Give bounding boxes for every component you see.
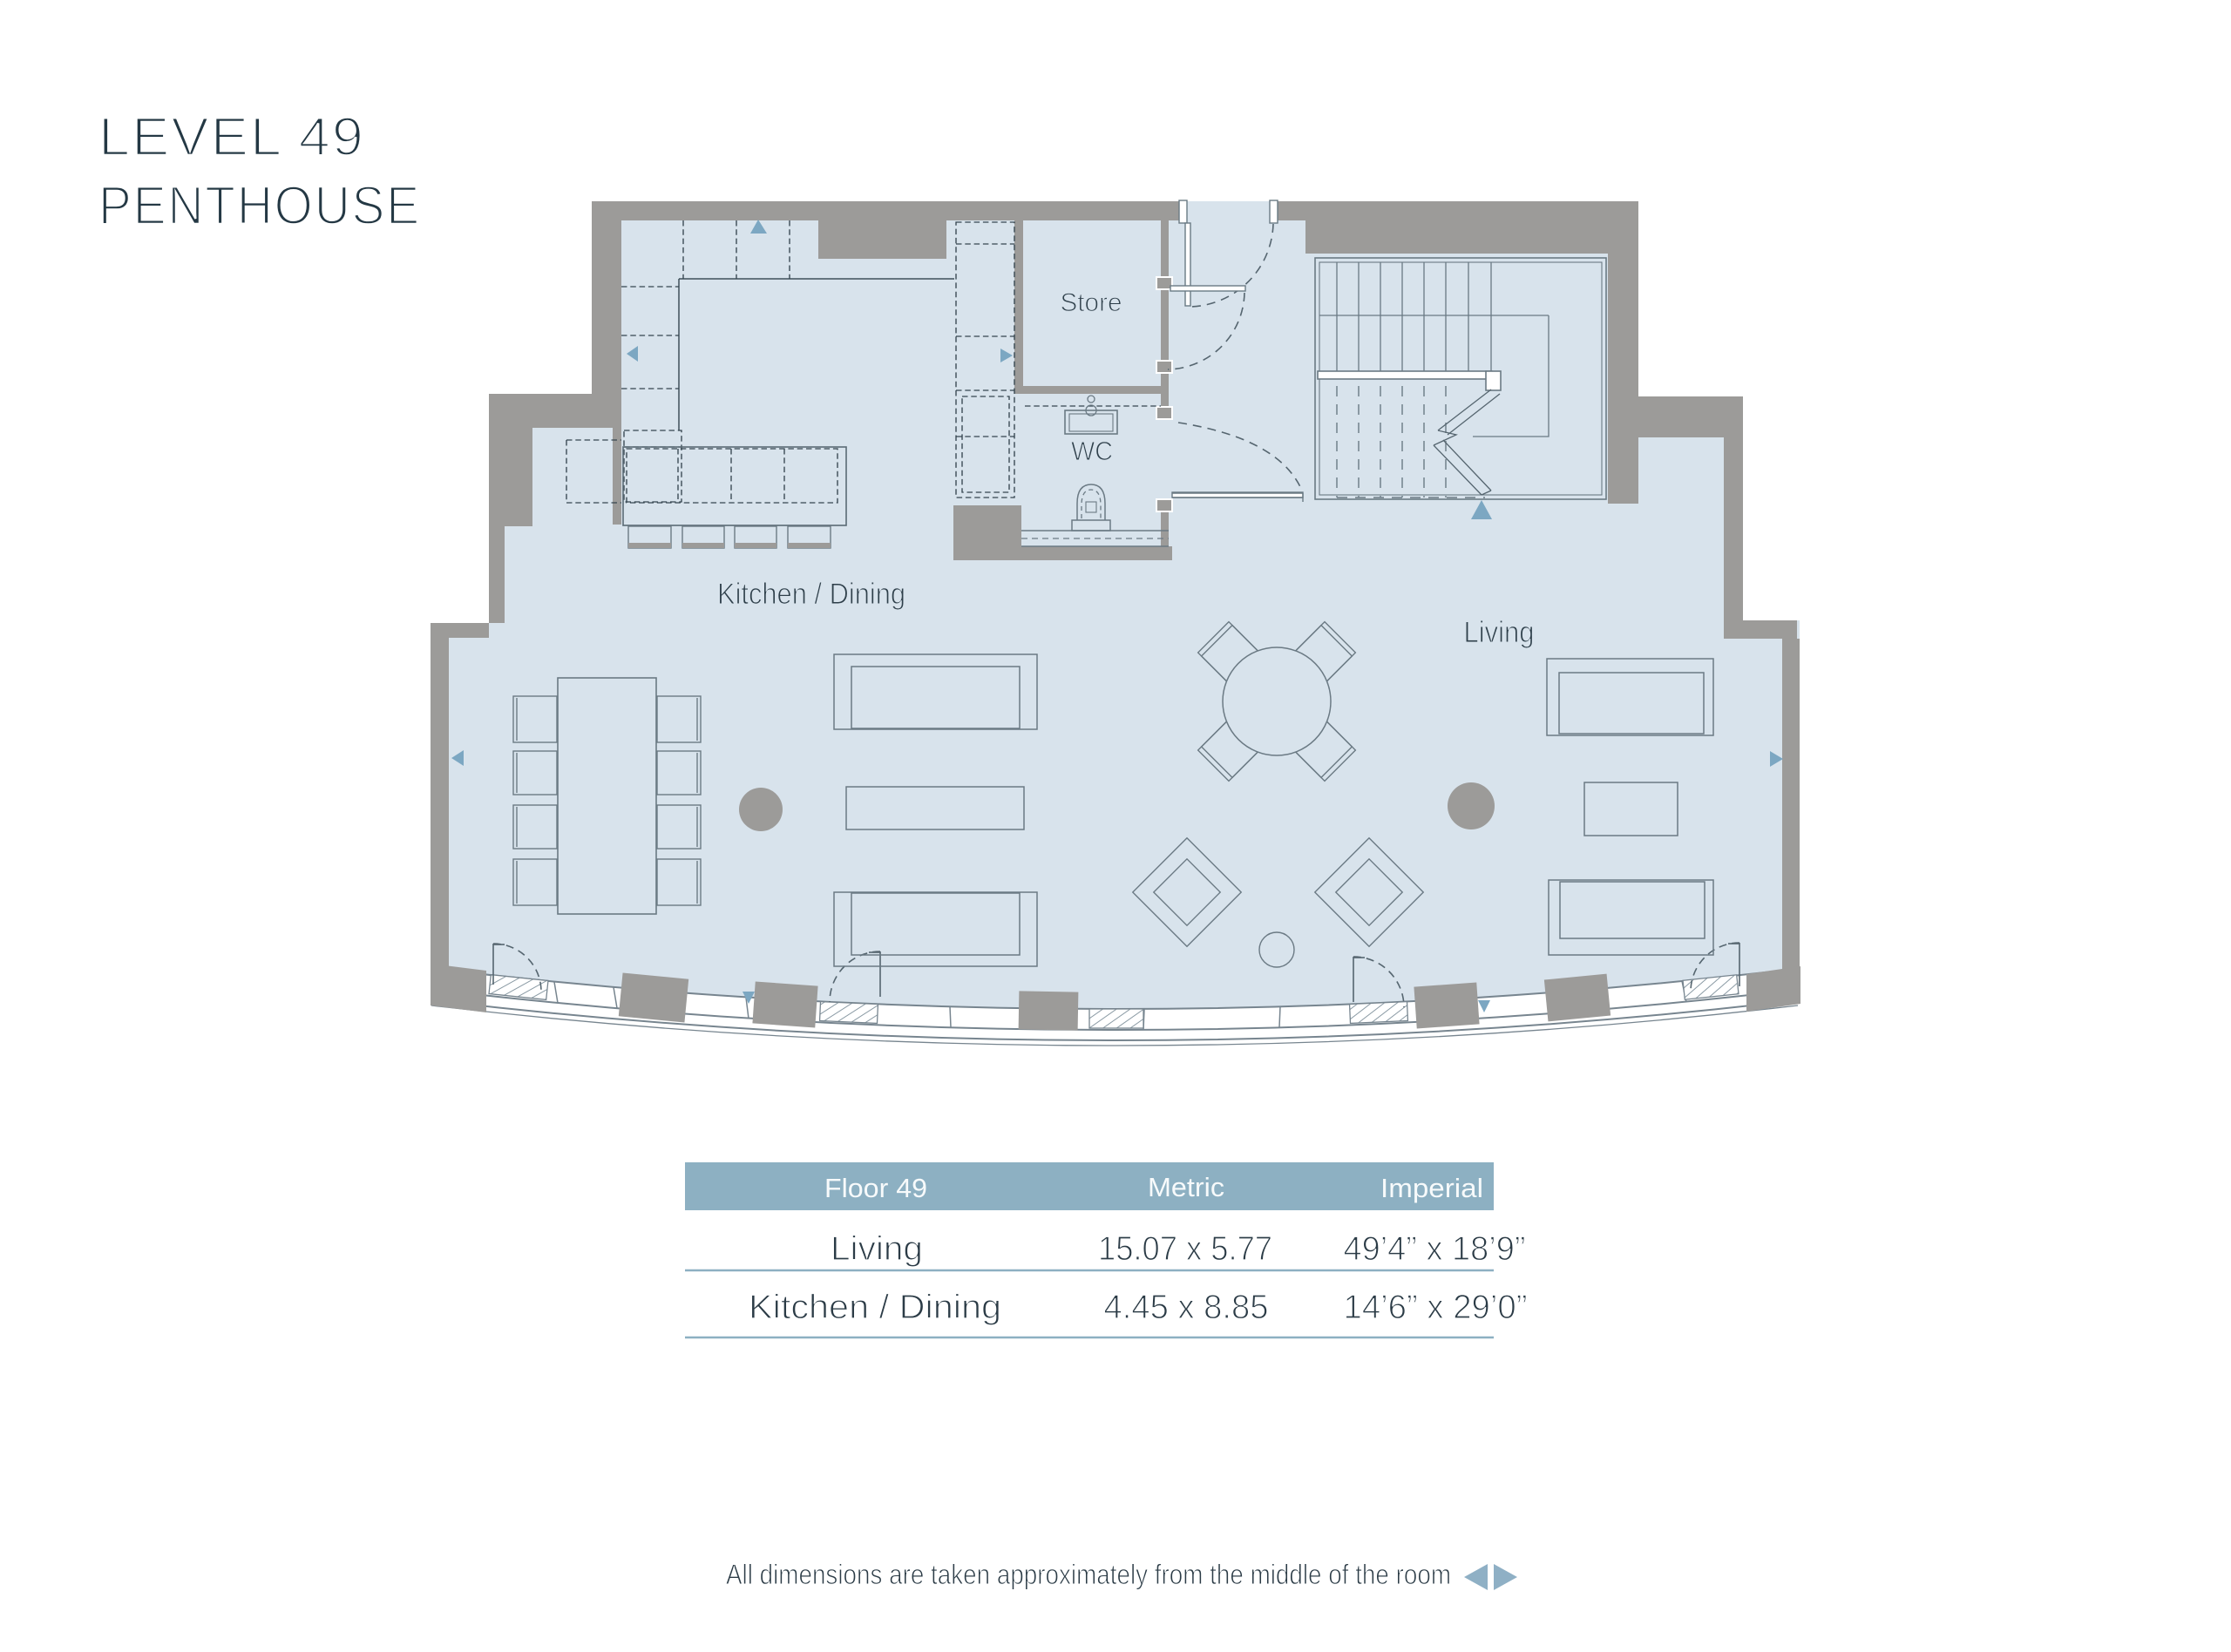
svg-text:All dimensions are taken appro: All dimensions are taken approximately f… bbox=[726, 1559, 1451, 1590]
svg-text:Floor 49: Floor 49 bbox=[824, 1173, 927, 1203]
svg-text:LEVEL 49: LEVEL 49 bbox=[98, 107, 365, 167]
svg-text:15.07 x 5.77: 15.07 x 5.77 bbox=[1098, 1230, 1272, 1268]
svg-text:Living: Living bbox=[1464, 616, 1535, 649]
svg-text:Metric: Metric bbox=[1148, 1172, 1224, 1202]
svg-text:Kitchen / Dining: Kitchen / Dining bbox=[717, 578, 905, 611]
svg-text:14’6” x 29’0”: 14’6” x 29’0” bbox=[1344, 1289, 1528, 1326]
svg-text:49’4” x 18’9”: 49’4” x 18’9” bbox=[1344, 1230, 1526, 1268]
svg-text:Kitchen / Dining: Kitchen / Dining bbox=[749, 1289, 1001, 1326]
svg-text:WC: WC bbox=[1071, 436, 1113, 466]
svg-text:Living: Living bbox=[831, 1230, 923, 1268]
svg-text:Imperial: Imperial bbox=[1380, 1173, 1483, 1203]
svg-text:4.45 x 8.85: 4.45 x 8.85 bbox=[1104, 1289, 1269, 1326]
svg-text:PENTHOUSE: PENTHOUSE bbox=[98, 176, 421, 236]
svg-text:Store: Store bbox=[1061, 288, 1122, 317]
